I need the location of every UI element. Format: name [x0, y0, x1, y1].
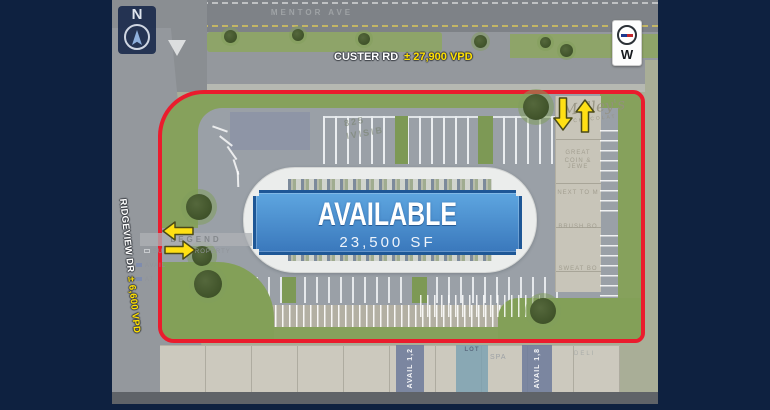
compass-west-letter: W: [613, 47, 641, 62]
tree: [474, 35, 487, 48]
traffic-count-custer: ± 27,900 VPD: [404, 51, 472, 63]
legend-chip-icon: [136, 277, 142, 281]
bush: [530, 298, 556, 324]
tenant-ghost-brush: BRUSH BO: [554, 224, 602, 230]
compass-west-badge: W: [612, 20, 642, 66]
tenant-ghost-next-to-me: NEXT TO M: [554, 190, 602, 196]
pavement-patch: [230, 112, 310, 150]
yield-marking-icon: [168, 40, 186, 56]
shop-unit-avail-1: AVAIL 1,2: [396, 345, 424, 392]
landscape-island: [395, 116, 408, 164]
landscape-island: [282, 277, 296, 303]
legend-chip-icon: [144, 249, 150, 253]
banner-area: 23,500 SF: [256, 234, 519, 251]
shop-unit-avail-2: AVAIL 1,8: [522, 345, 552, 392]
tree: [194, 270, 222, 298]
compass-needle-icon: [621, 34, 633, 37]
grass-median: [207, 32, 442, 52]
tree: [186, 194, 212, 220]
tree: [560, 44, 573, 57]
entry-arrow-down-icon: [553, 97, 573, 131]
tree: [523, 94, 549, 120]
site-plan-flyer: MENTOR AVE: [0, 0, 770, 410]
tenant-ghost-coin-jewelry: COIN & JEWE: [554, 158, 602, 170]
tree: [224, 30, 237, 43]
roadside-verge: [620, 345, 658, 392]
tree: [292, 29, 304, 41]
site-plan-map: MENTOR AVE: [112, 0, 658, 404]
entry-arrow-right-icon: [164, 240, 196, 260]
legend-ghost-at: AT: [136, 277, 154, 283]
south-road: [112, 392, 658, 404]
tenant-ghost-sweat: SWEAT BO: [554, 266, 602, 272]
legend-ghost-avail: AVAIL: [136, 263, 166, 269]
shop-ghost-lot: LOT: [460, 347, 484, 353]
legend-ghost-title: LEGEND: [140, 233, 252, 246]
entry-arrow-up-icon: [575, 99, 595, 133]
parking-row-stripes: [600, 130, 618, 215]
tree: [540, 37, 551, 48]
road-label-custer-rd: CUSTER RD± 27,900 VPD: [334, 51, 473, 63]
entry-arrow-left-icon: [162, 221, 194, 241]
road-label-mentor-ave: MENTOR AVE: [242, 8, 382, 17]
available-banner: AVAILABLE 23,500 SF: [253, 190, 522, 255]
shop-ghost-deli: DELI: [574, 351, 595, 357]
legend-chip-icon: [136, 263, 142, 267]
tenant-ghost-great: GREAT: [554, 150, 602, 156]
compass-north-letter: N: [118, 6, 156, 23]
shop-ghost-spa: SPA: [490, 354, 507, 361]
landscape-island: [478, 116, 493, 164]
tree: [358, 33, 370, 45]
compass-north-badge: N: [118, 6, 156, 54]
parking-row-stripes: [420, 295, 540, 317]
banner-title: AVAILABLE: [285, 198, 490, 230]
